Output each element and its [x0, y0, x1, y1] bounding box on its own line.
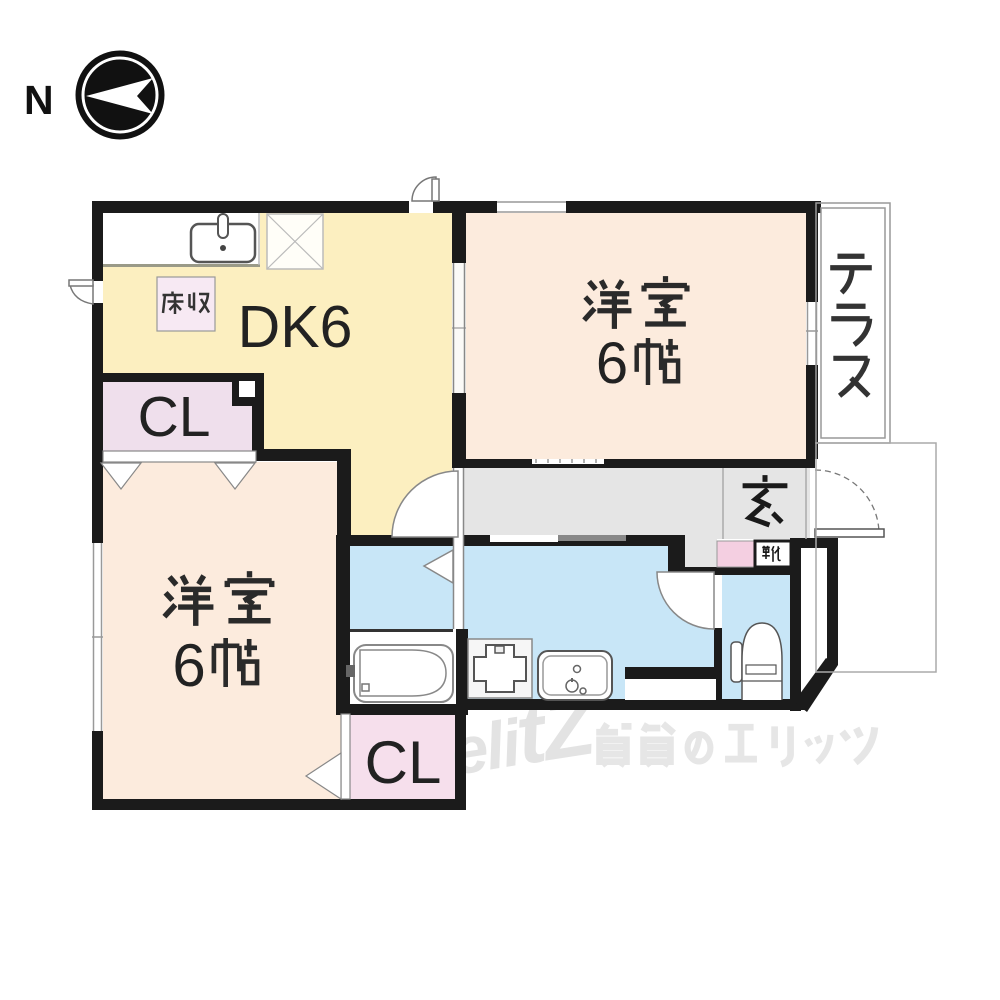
svg-text:6: 6 — [172, 632, 205, 699]
svg-text:CL: CL — [138, 385, 211, 449]
svg-text:6: 6 — [596, 331, 628, 396]
svg-text:N: N — [24, 77, 54, 123]
svg-text:DK6: DK6 — [238, 294, 353, 360]
svg-text:CL: CL — [365, 729, 442, 796]
